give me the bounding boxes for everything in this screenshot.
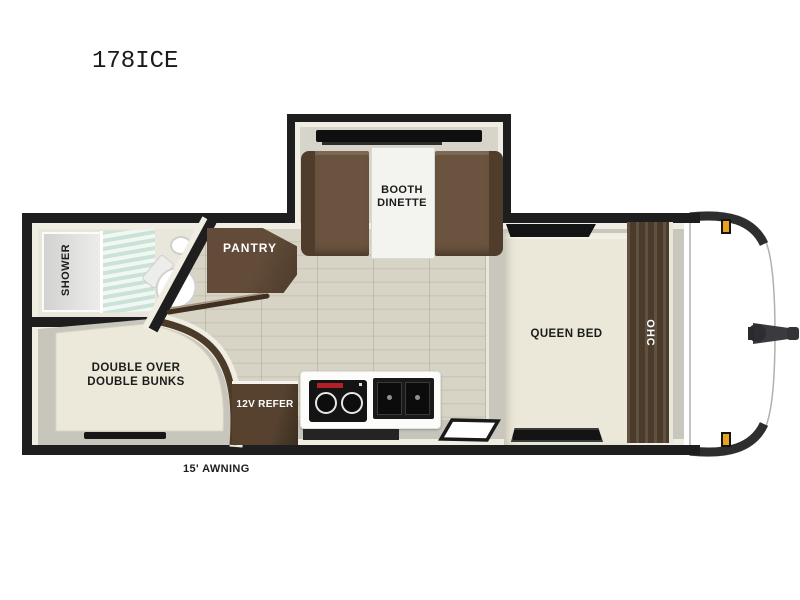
wall-bottom — [22, 445, 700, 455]
dinette-window-sill — [322, 142, 442, 145]
sink-drain — [387, 395, 392, 400]
wall-top-left — [22, 213, 295, 223]
marker-light-top — [722, 220, 730, 233]
cooktop-burner — [341, 392, 363, 414]
counter-base — [303, 429, 399, 440]
cooktop-brand-label — [317, 383, 343, 388]
front-cap-top-band — [690, 216, 764, 244]
pantry-label: PANTRY — [207, 241, 293, 255]
bed-foot-window — [511, 428, 603, 442]
shower-label: SHOWER — [60, 244, 73, 296]
hitch-arm — [753, 323, 789, 344]
hitch-jack — [748, 324, 766, 342]
hitch-base — [748, 327, 754, 340]
front-cap-bottom-band — [690, 424, 764, 452]
cooktop-burner — [315, 392, 337, 414]
wall-left — [22, 213, 32, 455]
model-title: 178ICE — [92, 48, 178, 75]
bed-head-window — [506, 224, 596, 237]
queen-bed-label: QUEEN BED — [504, 328, 629, 342]
bathroom-wall-trim — [32, 327, 150, 331]
refer-label: 12V REFER — [232, 399, 298, 411]
dinette-window — [316, 130, 482, 142]
cooktop-knob — [359, 383, 362, 386]
refrigerator — [232, 381, 298, 445]
ohc-label: OHC — [644, 319, 657, 346]
bunks-label: DOUBLE OVER DOUBLE BUNKS — [52, 362, 220, 389]
sink-drain — [415, 395, 420, 400]
ohc-label-wrap: OHC — [628, 311, 672, 355]
hitch-coupler — [787, 327, 799, 340]
marker-light-bottom — [722, 433, 730, 446]
bathroom-sink — [170, 236, 192, 255]
front-cap — [690, 212, 775, 456]
floorplan-page: 178ICE — [0, 0, 800, 600]
booth-dinette-label: BOOTH DINETTE — [356, 184, 448, 210]
awning-label: 15' AWNING — [183, 463, 263, 476]
shower-label-wrap: SHOWER — [44, 248, 88, 292]
bathroom-bottom-wall — [22, 317, 162, 327]
